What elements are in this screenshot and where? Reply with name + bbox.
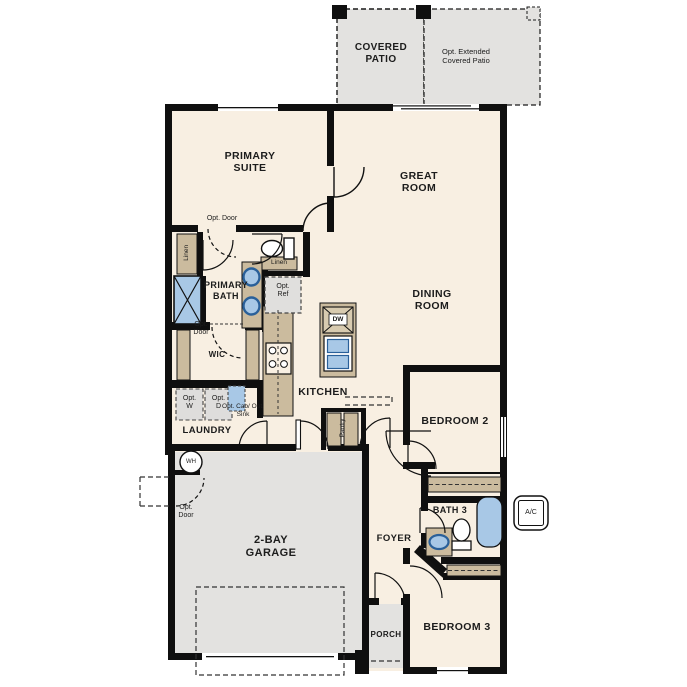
room-label-primary-bath: PRIMARY BATH <box>196 280 256 301</box>
kitchen-sink-icon <box>324 336 352 371</box>
opt-cab-sink-label: Opt. Cab/ Opt. Sink <box>222 403 264 418</box>
floor-plan-drawing <box>0 0 687 687</box>
room-label-covered-patio: COVERED PATIO <box>345 42 417 66</box>
room-label-pantry: Pantry <box>339 407 347 449</box>
opt-door-label-suite: Opt. Door <box>196 215 248 223</box>
toilet-icon <box>452 519 471 550</box>
room-label-garage: 2-BAY GARAGE <box>230 534 312 560</box>
wic-shelf <box>246 330 259 380</box>
opt-door-exterior-dashes <box>140 477 172 506</box>
floor-plan: COVERED PATIO Opt. Extended Covered Pati… <box>0 0 687 687</box>
opt-ref-label: Opt. Ref <box>272 283 294 300</box>
front-door-opening <box>379 599 401 604</box>
linen-label-vertical: Linen <box>183 232 191 274</box>
room-label-wic: WIC <box>200 350 234 359</box>
wic-shelf <box>177 330 190 380</box>
linen-label: Linen <box>261 259 297 267</box>
opt-door-label-garage: Opt. Door <box>175 504 197 521</box>
window-icon <box>437 667 468 674</box>
sliding-door-icon <box>393 104 479 111</box>
wh-label: WH <box>180 459 202 466</box>
room-label-bedroom-2: BEDROOM 2 <box>410 415 500 427</box>
window-icon <box>218 104 278 111</box>
room-label-kitchen: KITCHEN <box>283 386 363 398</box>
room-label-extended-patio: Opt. Extended Covered Patio <box>427 48 505 66</box>
window-icon <box>501 417 506 457</box>
patio-post-icon <box>416 5 431 19</box>
room-label-laundry: LAUNDRY <box>172 425 242 436</box>
room-label-primary-suite: PRIMARY SUITE <box>209 150 291 175</box>
room-label-porch: PORCH <box>368 630 404 639</box>
opt-door-label-wic: Opt. Door <box>190 321 212 338</box>
dw-label: DW <box>329 316 347 324</box>
patio-post-icon <box>332 5 347 19</box>
optional-patio-post-icon <box>527 7 540 20</box>
sink-icon <box>430 535 449 549</box>
room-label-bath-3: BATH 3 <box>420 505 480 516</box>
room-label-foyer: FOYER <box>364 533 424 544</box>
opt-washer-label: Opt. W <box>180 395 199 412</box>
garage-door-opening <box>202 653 338 660</box>
bathtub-icon <box>477 497 502 547</box>
room-label-dining-room: DINING ROOM <box>397 288 467 313</box>
room-label-bedroom-3: BEDROOM 3 <box>412 621 502 633</box>
door-leaf <box>296 420 301 449</box>
ac-label: A/C <box>517 509 545 517</box>
room-label-great-room: GREAT ROOM <box>384 170 454 195</box>
